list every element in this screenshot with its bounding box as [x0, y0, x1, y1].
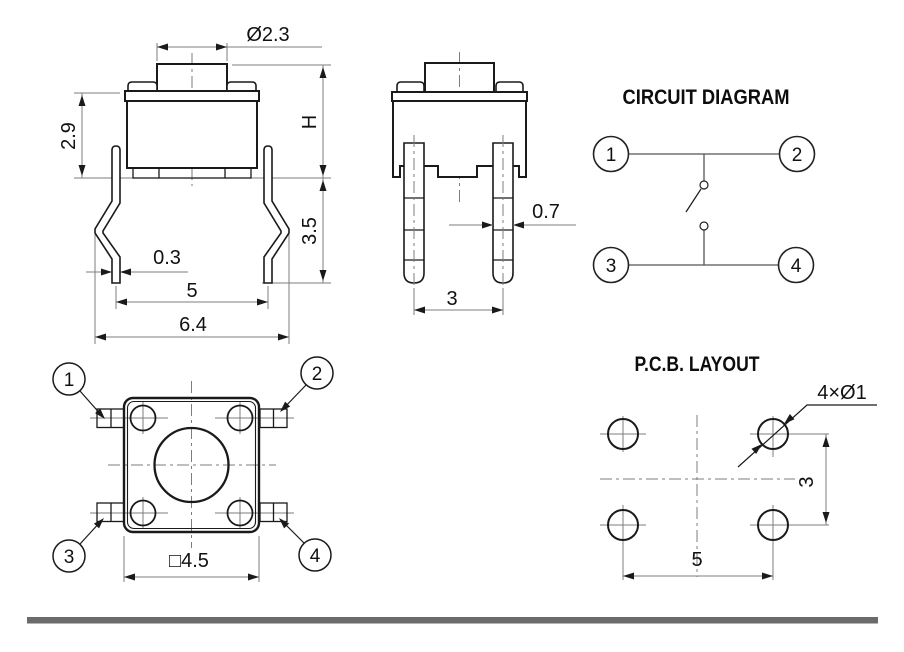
dim-arrow	[278, 334, 289, 341]
dim-label-button-dia: Ø2.3	[246, 24, 289, 46]
top-view: 1 2 3 4 □4.5	[53, 357, 333, 582]
switch-lever	[686, 189, 701, 212]
dim-arrow	[124, 574, 135, 581]
dim-label-pitch-v: 3	[796, 476, 818, 487]
pcb-hole-crosshairs	[600, 416, 829, 580]
pin-callout-2-label: 2	[312, 364, 323, 385]
dim-arrow	[216, 44, 227, 51]
dim-arrow	[157, 44, 168, 51]
terminal-1-label: 1	[606, 145, 617, 166]
dim-arrow	[320, 165, 327, 176]
terminal-4-label: 4	[791, 256, 802, 277]
dim-arrow	[762, 573, 773, 580]
dim-arrow	[414, 307, 425, 314]
drawing-sheet: Ø2.3 2.9 H 3.5 0.3 5 6.4 0.7 3 CIRCUIT D…	[0, 0, 904, 652]
dim-arrow	[482, 222, 493, 229]
switch-contact-lower	[700, 222, 708, 230]
footer-bar	[27, 617, 878, 624]
dim-label-pitch-h: 5	[691, 549, 702, 571]
dim-label-upper-height: 2.9	[58, 122, 80, 150]
dim-arrow	[320, 67, 327, 78]
front-left-lead	[95, 146, 120, 283]
dim-arrow	[823, 436, 830, 447]
technical-drawing: Ø2.3 2.9 H 3.5 0.3 5 6.4 0.7 3 CIRCUIT D…	[0, 0, 904, 652]
dim-arrow	[101, 269, 112, 276]
dim-arrow	[257, 299, 268, 306]
dim-arrow	[79, 165, 86, 176]
front-body	[127, 101, 257, 168]
dim-label-lead-height: 3.5	[299, 217, 321, 245]
pin-callout-3-label: 3	[64, 547, 75, 568]
dim-label-lead-pitch: 5	[186, 280, 197, 302]
top-centerlines	[108, 381, 276, 548]
dim-arrow	[116, 299, 127, 306]
dim-label-lead-span: 6.4	[179, 314, 207, 336]
front-cap-plate	[125, 91, 259, 101]
pcb-layout: P.C.B. LAYOUT 4×Ø1 3 5	[600, 353, 877, 580]
circuit-diagram: CIRCUIT DIAGRAM 1 2 3 4	[594, 86, 815, 283]
dim-arrow	[248, 574, 259, 581]
terminal-3-label: 3	[606, 256, 617, 277]
dim-label-total-height: H	[299, 115, 321, 129]
dim-label-lead-thickness: 0.3	[153, 247, 181, 269]
side-view: 0.7 3	[392, 52, 576, 315]
dim-label-pin-width: 0.7	[532, 201, 560, 223]
dim-label-body-size: □4.5	[169, 550, 209, 572]
dim-label-pin-pitch: 3	[446, 288, 457, 310]
circuit-wires	[628, 154, 779, 265]
dim-arrow	[492, 307, 503, 314]
dim-arrow	[513, 222, 524, 229]
pin-callout-1-label: 1	[64, 370, 75, 391]
dim-arrow	[623, 573, 634, 580]
pin-callout-4-label: 4	[310, 546, 321, 567]
dim-arrow	[823, 512, 830, 523]
dim-arrow	[320, 180, 327, 191]
side-cap-plate	[392, 92, 527, 101]
front-right-lead	[264, 146, 289, 283]
dim-arrow	[79, 95, 86, 106]
dim-arrow	[120, 269, 131, 276]
dim-label-holes: 4×Ø1	[817, 382, 866, 404]
circuit-diagram-title: CIRCUIT DIAGRAM	[623, 86, 790, 109]
dim-arrow	[320, 270, 327, 281]
switch-contact-upper	[700, 181, 708, 189]
front-view: Ø2.3 2.9 H 3.5 0.3 5 6.4	[58, 24, 331, 344]
dim-arrow	[95, 334, 106, 341]
terminal-2-label: 2	[792, 145, 803, 166]
pcb-layout-title: P.C.B. LAYOUT	[635, 353, 760, 376]
